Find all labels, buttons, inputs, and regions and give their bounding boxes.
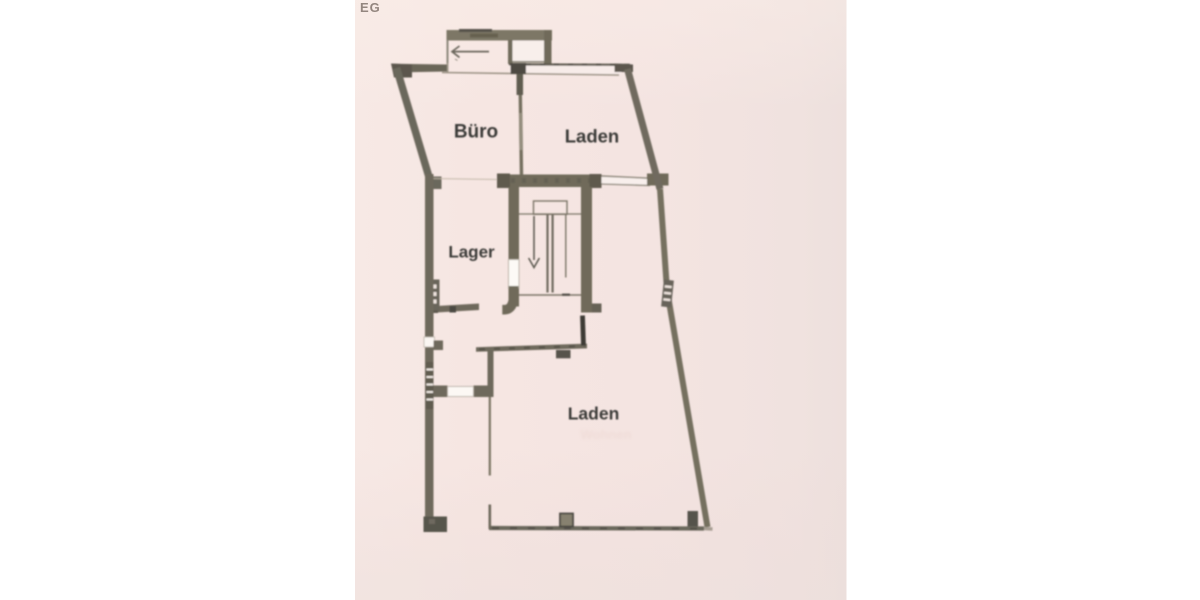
svg-text:Wohnen: Wohnen (580, 427, 631, 442)
svg-text:Lager: Lager (448, 243, 495, 262)
svg-text:Laden: Laden (565, 126, 619, 147)
svg-text:EG: EG (360, 0, 381, 15)
svg-text:Büro: Büro (454, 122, 498, 143)
svg-text:Laden: Laden (568, 404, 620, 424)
